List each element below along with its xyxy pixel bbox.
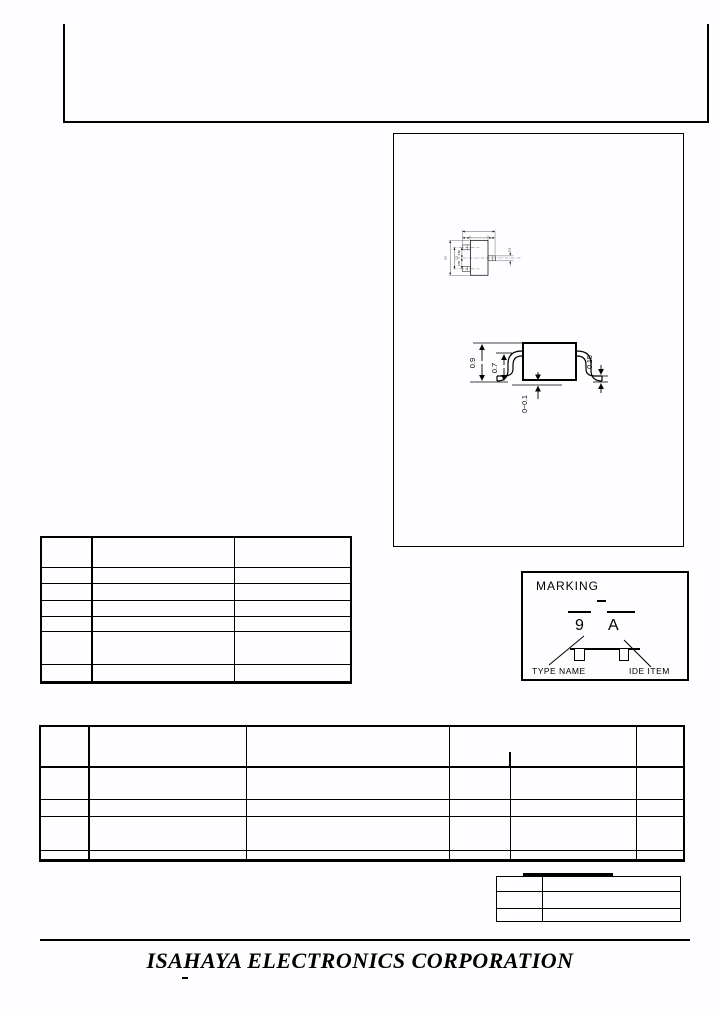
cell: [636, 799, 684, 816]
cell: [89, 726, 246, 767]
footer-underline-mark: [182, 977, 188, 979]
cell: [92, 601, 234, 616]
cell: [40, 817, 89, 851]
cell: [92, 583, 234, 601]
dim-label-standoff: 0~0.1: [522, 395, 529, 413]
cell: [41, 632, 92, 665]
footer-rule: [40, 939, 690, 941]
cell: [234, 537, 351, 568]
lead-right: [488, 256, 496, 261]
cell: [41, 568, 92, 583]
package-side-view: 0.9 0.7 0~0.1 0.15: [460, 335, 610, 430]
cell: [510, 817, 636, 851]
cell: [40, 767, 89, 800]
marking-caption-ide-item: IDE ITEM: [629, 666, 670, 676]
cell: [40, 850, 89, 860]
cell: [449, 799, 510, 816]
cell: [543, 908, 681, 921]
cell: [449, 817, 510, 851]
cell: [497, 892, 543, 908]
datasheet-page: 2.0 1.3 0.65 0.35 0.3: [0, 0, 720, 1012]
cell: [497, 908, 543, 921]
dim-label-lead-width: 0.3: [508, 247, 512, 251]
package-top-view: 2.0 1.3 0.65 0.35 0.3: [440, 180, 680, 325]
cell: [246, 817, 449, 851]
lead-left-side: [497, 351, 522, 381]
footer-company: ISAHAYA ELECTRONICS CORPORATION: [10, 948, 710, 974]
dim-label-pitch-lower: 0.35: [457, 261, 461, 267]
cell: [41, 583, 92, 601]
dim-label-lead-span: 1.3: [454, 256, 458, 260]
cell: [92, 568, 234, 583]
cell: [41, 601, 92, 616]
cell: [449, 767, 510, 800]
cell: [234, 601, 351, 616]
cell: [41, 616, 92, 631]
cell: [449, 850, 510, 860]
marking-caption-type-name: TYPE NAME: [532, 666, 586, 676]
cell: [636, 767, 684, 800]
cell: [636, 726, 684, 767]
cell: [89, 817, 246, 851]
cell: [497, 877, 543, 892]
cell: [636, 850, 684, 860]
dim-label-lead-thickness: 0.15: [587, 355, 594, 369]
header-box: [63, 24, 709, 123]
cell: [234, 665, 351, 683]
cell: [234, 568, 351, 583]
cell: [246, 799, 449, 816]
marking-box: MARKING 9 A TYPE NAME IDE ITEM: [521, 571, 689, 681]
cell: [543, 877, 681, 892]
cell: [234, 632, 351, 665]
cell: [92, 616, 234, 631]
cell: [89, 799, 246, 816]
dim-label-body-height: 0.7: [490, 363, 499, 373]
revision-table: [496, 876, 681, 922]
cell: [636, 817, 684, 851]
body-side-outline: [523, 343, 576, 380]
cell: [449, 726, 636, 767]
cell: [92, 665, 234, 683]
dim-label-overall: 2.0: [444, 256, 448, 260]
cell: [40, 799, 89, 816]
dim-label-height: 0.9: [468, 358, 477, 368]
main-spec-table: [39, 725, 685, 862]
cell: [89, 850, 246, 860]
cell: [246, 850, 449, 860]
cell: [40, 726, 89, 767]
cell: [246, 767, 449, 800]
main-table-header-tick: [509, 752, 511, 766]
cell: [41, 665, 92, 683]
cell: [234, 583, 351, 601]
cell: [234, 616, 351, 631]
cell: [510, 799, 636, 816]
cell: [510, 850, 636, 860]
cell: [89, 767, 246, 800]
cell: [510, 767, 636, 800]
cell: [543, 892, 681, 908]
cell: [92, 632, 234, 665]
cell: [246, 726, 449, 767]
body-outline: [470, 240, 488, 275]
dim-label-pitch-upper: 0.65: [457, 250, 461, 256]
left-spec-table: [40, 536, 352, 684]
cell: [41, 537, 92, 568]
cell: [92, 537, 234, 568]
